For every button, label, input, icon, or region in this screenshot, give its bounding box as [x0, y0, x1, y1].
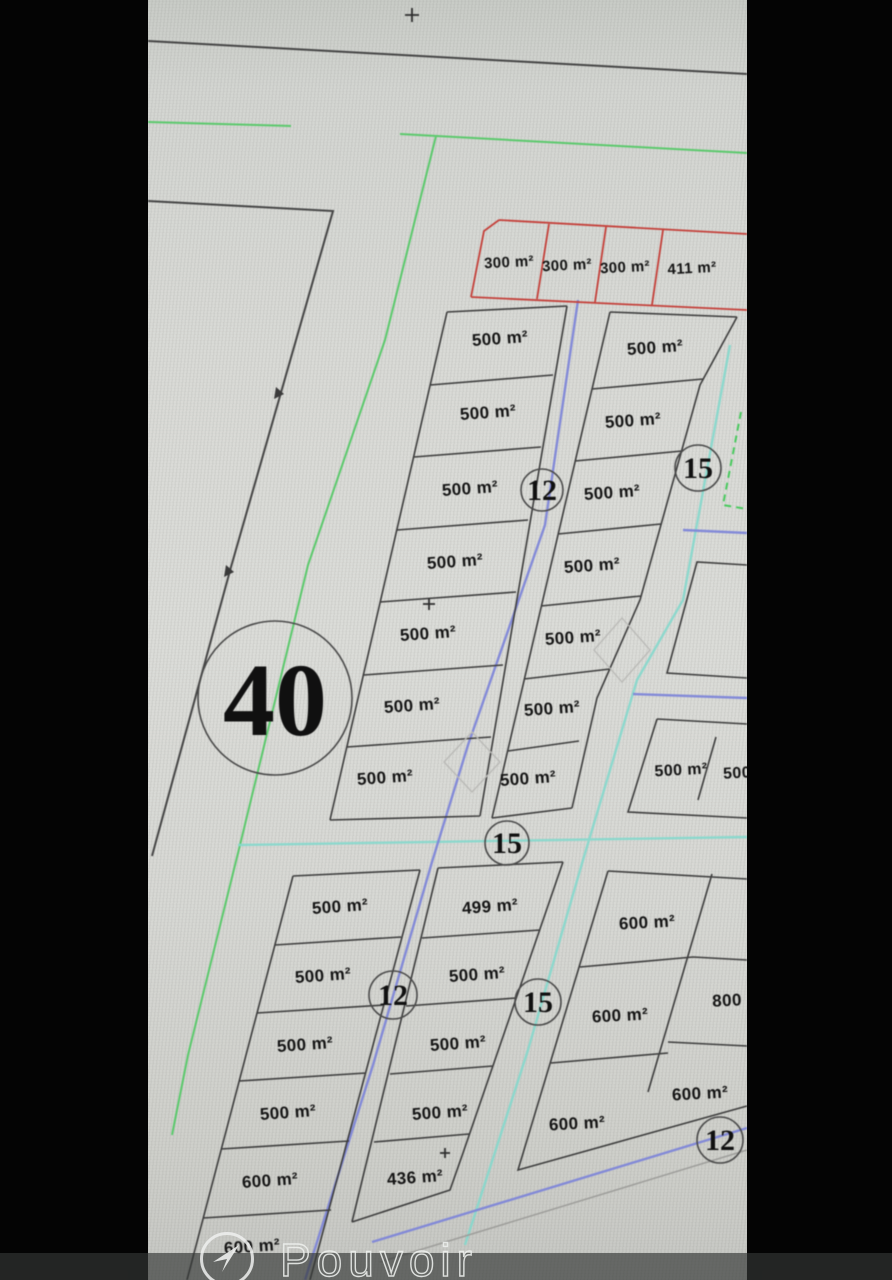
watermark-text-layer: Pouvoir	[0, 0, 892, 1280]
watermark-brand-text: Pouvoir	[280, 1234, 478, 1280]
phone-screenshot: 300 m² 300 m² 300 m² 411 m² 500 m² 500 m…	[0, 0, 892, 1280]
